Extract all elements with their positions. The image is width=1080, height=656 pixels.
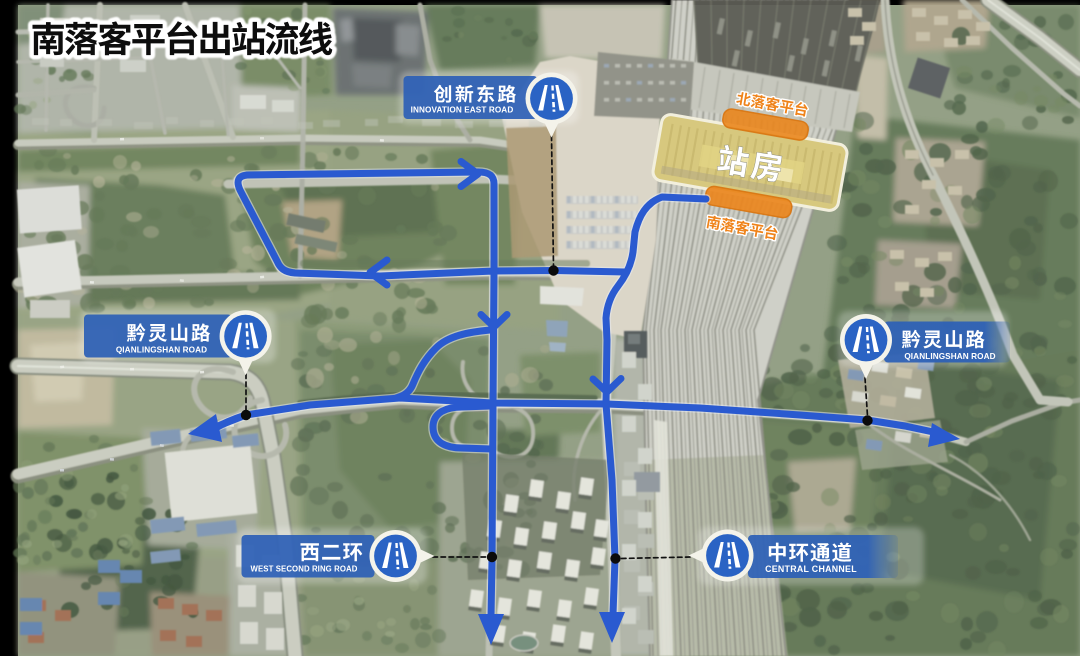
svg-text:CENTRAL CHANNEL: CENTRAL CHANNEL <box>765 564 857 574</box>
svg-text:WEST SECOND RING ROAD: WEST SECOND RING ROAD <box>251 565 358 574</box>
svg-text:QIANLINGSHAN ROAD: QIANLINGSHAN ROAD <box>904 352 995 361</box>
svg-text:INNOVATION EAST ROAD: INNOVATION EAST ROAD <box>411 106 514 115</box>
svg-text:QIANLINGSHAN ROAD: QIANLINGSHAN ROAD <box>116 346 207 355</box>
